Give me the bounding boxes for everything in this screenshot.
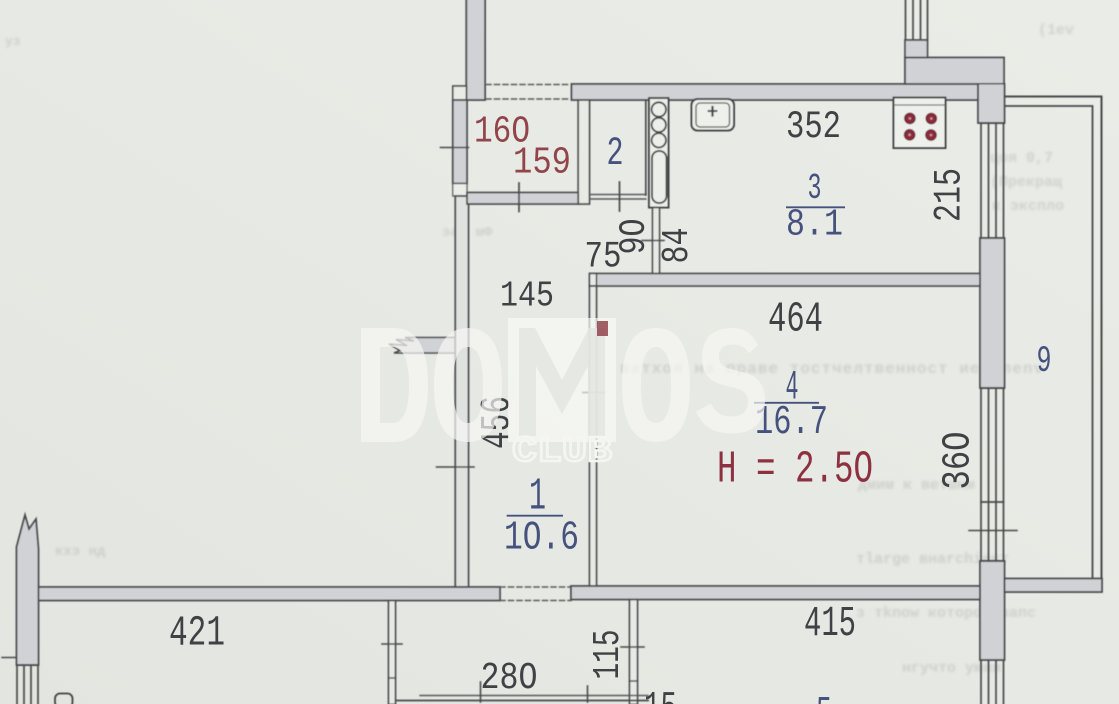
svg-text:15: 15 [644, 686, 677, 704]
svg-text:уз: уз [5, 34, 21, 49]
svg-text:кхэ нд: кхэ нд [55, 544, 106, 560]
svg-text:159: 159 [513, 142, 571, 185]
svg-text:28O: 28O [481, 657, 538, 700]
svg-text:36O: 36O [937, 432, 982, 490]
svg-text:8.1: 8.1 [786, 204, 843, 247]
svg-text:352: 352 [786, 105, 841, 149]
svg-text:215: 215 [927, 168, 971, 222]
svg-text:(1еv: (1еv [1038, 22, 1074, 39]
svg-text:464: 464 [768, 295, 823, 344]
svg-text:84: 84 [656, 228, 699, 264]
svg-text:5: 5 [816, 689, 832, 704]
svg-text:нгучто уюяя: нгучто уюяя [902, 660, 1001, 677]
svg-text:9O: 9O [614, 219, 656, 255]
svg-text:2: 2 [607, 132, 624, 177]
svg-text:CLUB: CLUB [512, 431, 612, 472]
svg-text:H = 2.5O: H = 2.5O [717, 445, 873, 496]
svg-text:421: 421 [169, 609, 225, 658]
svg-text:115: 115 [587, 630, 630, 680]
svg-text:(Прекращ: (Прекращ [990, 174, 1062, 191]
svg-text:145: 145 [500, 276, 554, 317]
svg-text:з тknow котором вапс: з тknow котором вапс [856, 605, 1036, 622]
svg-text:415: 415 [804, 599, 856, 648]
svg-text:16.7: 16.7 [755, 400, 828, 446]
svg-text:цоя 0,7: цоя 0,7 [990, 150, 1053, 167]
svg-text:9: 9 [1037, 341, 1052, 383]
svg-text:1O.6: 1O.6 [504, 516, 579, 562]
